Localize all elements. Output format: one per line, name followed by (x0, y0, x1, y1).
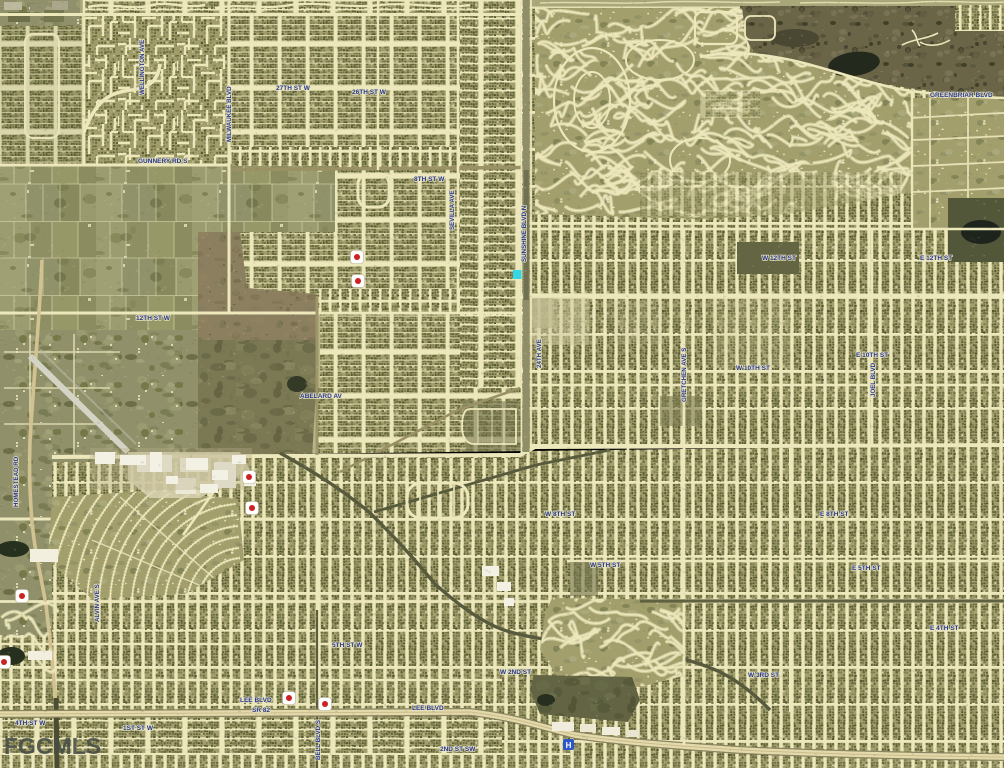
svg-text:W 5TH ST: W 5TH ST (590, 562, 620, 569)
svg-text:HOMESTEAD RD: HOMESTEAD RD (13, 456, 20, 507)
svg-text:GUNNERY RD S: GUNNERY RD S (138, 158, 188, 165)
svg-text:E 8TH ST: E 8TH ST (820, 511, 849, 518)
svg-text:W 10TH ST: W 10TH ST (736, 365, 770, 372)
svg-text:E 12TH ST: E 12TH ST (920, 255, 952, 262)
svg-text:12TH ST W: 12TH ST W (136, 315, 171, 322)
svg-text:GRETCHEN AVE S: GRETCHEN AVE S (681, 348, 688, 402)
svg-text:E 4TH ST: E 4TH ST (930, 625, 959, 632)
svg-text:2ND ST SW: 2ND ST SW (440, 746, 476, 753)
svg-text:E 10TH ST: E 10TH ST (856, 352, 888, 359)
svg-text:26TH ST W: 26TH ST W (352, 89, 387, 96)
svg-text:27TH ST W: 27TH ST W (276, 85, 311, 92)
svg-text:BELL BLVD S: BELL BLVD S (315, 720, 322, 760)
svg-text:W 12TH ST: W 12TH ST (762, 255, 796, 262)
svg-text:1ST ST W: 1ST ST W (123, 725, 154, 732)
svg-text:LEE BLVD: LEE BLVD (412, 705, 444, 712)
svg-text:ALVIN AVE S: ALVIN AVE S (94, 584, 101, 622)
svg-text:ABELARD AV: ABELARD AV (300, 393, 343, 400)
svg-text:JOEL BLVD: JOEL BLVD (870, 362, 877, 397)
svg-text:8TH ST W: 8TH ST W (414, 176, 445, 183)
svg-text:SR 82: SR 82 (252, 707, 270, 714)
svg-text:SEVILLA AVE: SEVILLA AVE (449, 190, 456, 230)
svg-text:24TH AVE: 24TH AVE (536, 339, 543, 368)
svg-text:5TH ST W: 5TH ST W (332, 642, 363, 649)
svg-text:H: H (566, 741, 572, 750)
svg-text:E 5TH ST: E 5TH ST (852, 565, 881, 572)
svg-text:MILWAUKEE BLVD: MILWAUKEE BLVD (226, 86, 233, 142)
svg-text:SUNSHINE BLVD N: SUNSHINE BLVD N (521, 205, 528, 262)
svg-text:W 2ND ST: W 2ND ST (500, 669, 531, 676)
svg-text:WELLINGTON AVE: WELLINGTON AVE (139, 40, 146, 95)
svg-text:LEE BLVD: LEE BLVD (240, 697, 272, 704)
svg-text:4TH ST W: 4TH ST W (15, 720, 46, 727)
svg-text:W 8TH ST: W 8TH ST (545, 511, 575, 518)
svg-text:FGCMLS: FGCMLS (4, 733, 101, 759)
svg-text:W 3RD ST: W 3RD ST (748, 672, 779, 679)
svg-text:GREENBRIAR BLVD: GREENBRIAR BLVD (930, 92, 993, 99)
